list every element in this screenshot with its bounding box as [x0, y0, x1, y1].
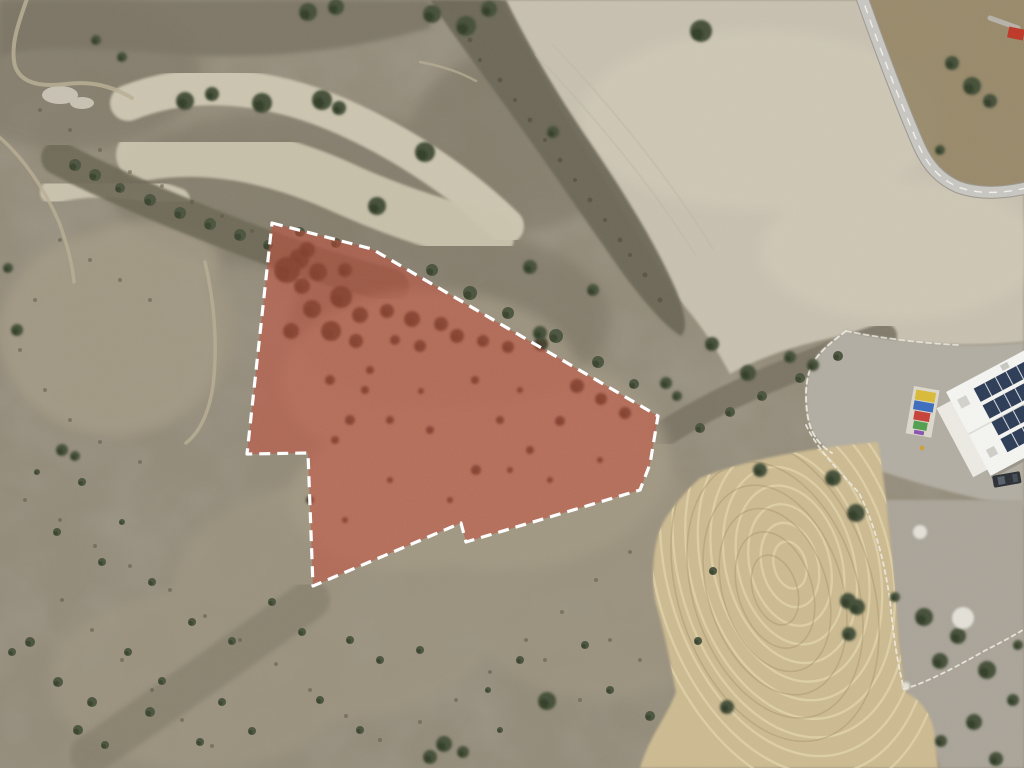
aerial-photo-canvas [0, 0, 1024, 768]
aerial-photo [0, 0, 1024, 768]
film-grain [0, 0, 1024, 768]
